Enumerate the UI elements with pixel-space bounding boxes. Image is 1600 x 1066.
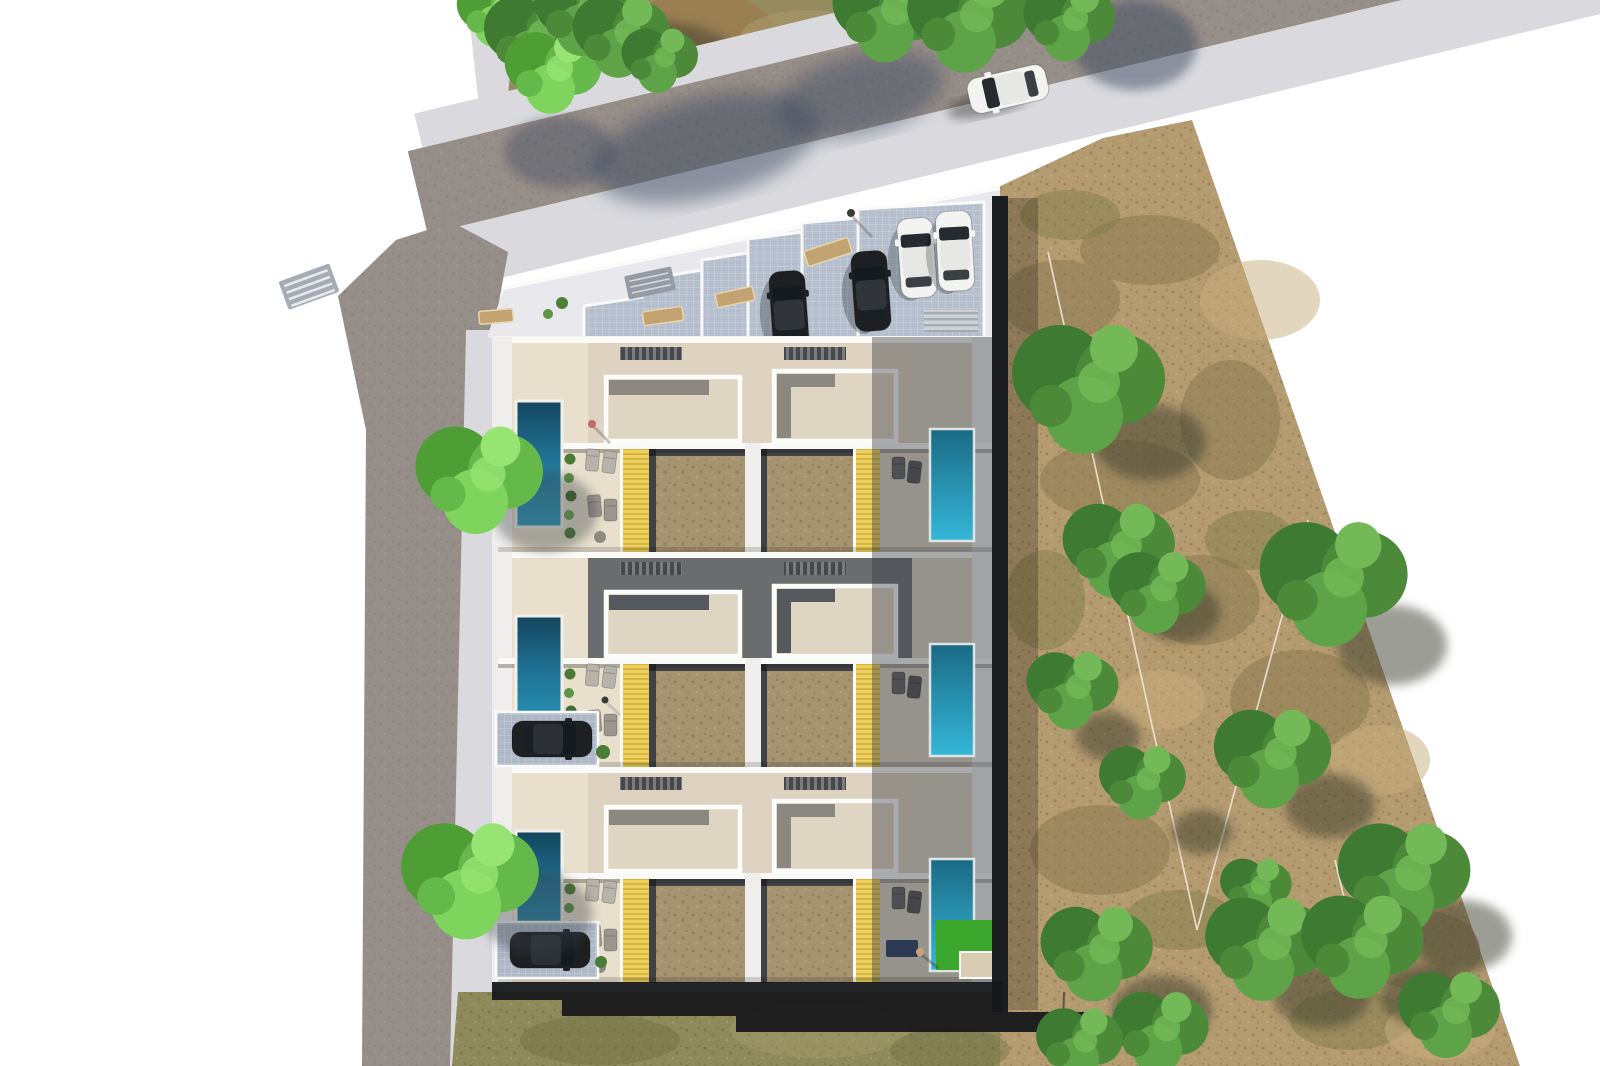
car-black-driveway-1 [512,718,592,760]
shrub [543,309,553,319]
car-white-2 [932,210,978,292]
spa-bench [886,940,918,957]
person [588,420,596,428]
site-plan-svg [0,0,1600,1066]
person [916,948,924,956]
site-plan-render [0,0,1600,1066]
paver-pad [960,952,994,978]
driveway-1 [496,712,610,766]
potted-plant [596,745,610,759]
shrub [556,297,568,309]
person [847,209,855,217]
potted-plant [595,956,607,968]
person [602,697,609,704]
